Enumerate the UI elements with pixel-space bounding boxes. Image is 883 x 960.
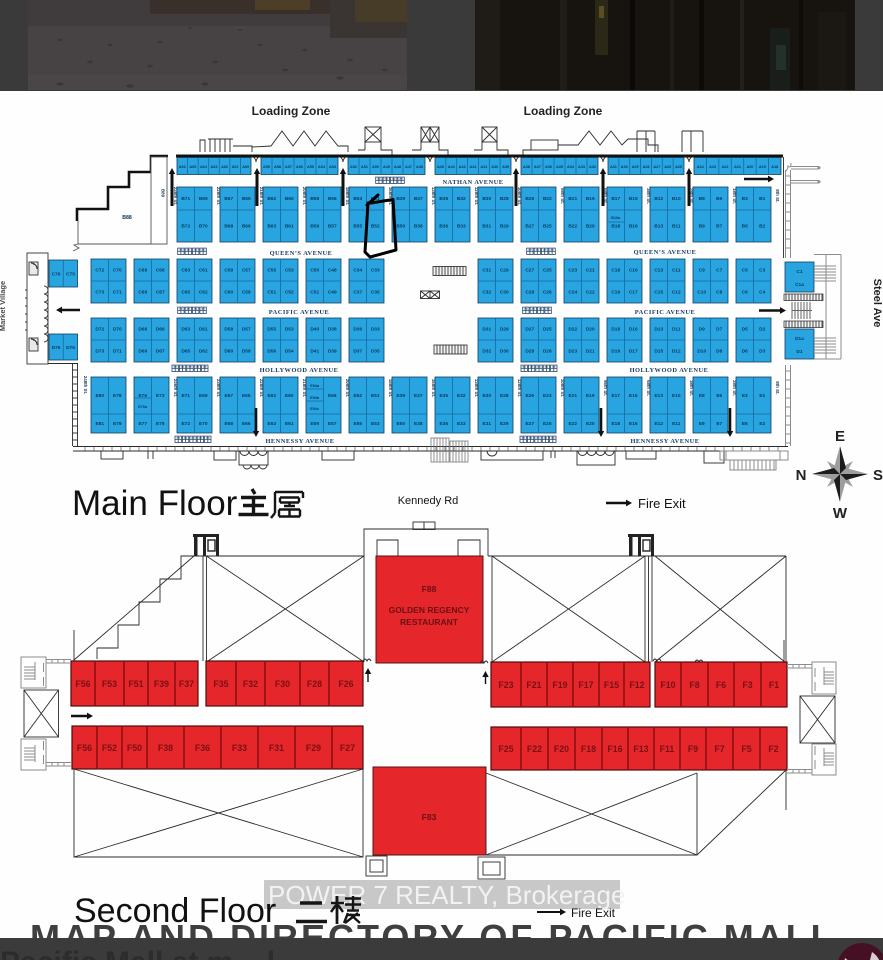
svg-text:E54a: E54a: [310, 384, 320, 388]
svg-text:D75: D75: [66, 345, 75, 351]
svg-text:D15: D15: [654, 349, 663, 355]
svg-text:F7: F7: [714, 744, 724, 754]
svg-text:C24: C24: [568, 290, 577, 296]
svg-text:D76: D76: [52, 345, 61, 351]
svg-text:B22: B22: [568, 224, 577, 230]
svg-text:F32: F32: [243, 679, 258, 689]
svg-text:C29: C29: [500, 268, 509, 274]
svg-text:C67: C67: [156, 290, 165, 296]
svg-text:B60: B60: [285, 196, 294, 202]
svg-text:F29: F29: [306, 743, 321, 753]
svg-text:A32: A32: [589, 165, 596, 169]
svg-text:B65: B65: [242, 196, 251, 202]
svg-text:B36: B36: [439, 224, 448, 230]
svg-text:F18: F18: [581, 744, 596, 754]
svg-text:F36: F36: [195, 743, 210, 753]
svg-text:D56: D56: [267, 349, 276, 355]
svg-text:A39: A39: [502, 165, 509, 169]
svg-text:C6: C6: [742, 290, 748, 296]
svg-text:A22: A22: [722, 165, 729, 169]
svg-text:D71: D71: [113, 349, 122, 355]
svg-text:D39: D39: [328, 349, 337, 355]
svg-text:E23: E23: [543, 393, 552, 399]
svg-text:B13: B13: [654, 224, 663, 230]
svg-text:C35: C35: [371, 290, 380, 296]
svg-text:238th St.: 238th St.: [216, 379, 221, 397]
svg-text:E76: E76: [138, 393, 147, 399]
svg-text:B59: B59: [310, 224, 319, 230]
svg-text:E70: E70: [199, 421, 208, 427]
svg-text:38th St.: 38th St.: [689, 380, 694, 396]
svg-text:E60: E60: [285, 393, 294, 399]
svg-text:A37: A37: [534, 165, 541, 169]
svg-text:D30: D30: [500, 349, 509, 355]
svg-text:B66: B66: [242, 224, 251, 230]
svg-text:D61: D61: [199, 327, 208, 333]
svg-text:E67: E67: [224, 393, 233, 399]
svg-text:A50: A50: [372, 165, 379, 169]
svg-text:248th St.: 248th St.: [83, 376, 88, 394]
svg-text:B35: B35: [439, 196, 448, 202]
svg-text:NATHAN AVENUE: NATHAN AVENUE: [442, 179, 503, 186]
svg-text:F33: F33: [232, 743, 247, 753]
svg-text:B89: B89: [161, 189, 166, 198]
svg-text:B19: B19: [586, 196, 595, 202]
svg-text:D33: D33: [371, 327, 380, 333]
svg-text:D59: D59: [224, 327, 233, 333]
svg-text:D36: D36: [353, 327, 362, 333]
svg-text:E6: E6: [716, 393, 722, 399]
svg-text:Pacific Mall at m... l: Pacific Mall at m... l: [0, 946, 275, 960]
svg-text:E72: E72: [181, 421, 190, 427]
svg-text:QUEEN’S AVENUE: QUEEN’S AVENUE: [270, 250, 333, 257]
svg-text:E16: E16: [629, 421, 638, 427]
svg-text:B28: B28: [500, 196, 509, 202]
svg-text:C9: C9: [699, 268, 705, 274]
svg-text:E15: E15: [629, 393, 638, 399]
svg-text:F88: F88: [422, 584, 437, 594]
svg-text:E35: E35: [439, 393, 448, 399]
svg-text:E: E: [835, 428, 845, 445]
svg-text:F38: F38: [158, 743, 173, 753]
svg-text:C12: C12: [672, 290, 681, 296]
svg-text:D54: D54: [285, 349, 294, 355]
svg-text:A26: A26: [664, 165, 671, 169]
svg-text:A28: A28: [643, 165, 650, 169]
svg-text:F51: F51: [128, 679, 143, 689]
svg-text:B53: B53: [353, 196, 362, 202]
svg-text:C18: C18: [611, 268, 620, 274]
svg-text:D69: D69: [138, 349, 147, 355]
svg-text:E7: E7: [716, 421, 722, 427]
svg-text:A18: A18: [771, 165, 778, 169]
svg-text:C71: C71: [113, 290, 122, 296]
svg-text:E68: E68: [224, 421, 233, 427]
svg-text:B32: B32: [457, 196, 466, 202]
svg-text:HOLLYWOOD AVENUE: HOLLYWOOD AVENUE: [630, 367, 709, 374]
svg-text:D40: D40: [310, 327, 319, 333]
svg-text:E30: E30: [482, 393, 491, 399]
svg-text:A40: A40: [491, 165, 498, 169]
svg-text:C48: C48: [328, 268, 337, 274]
svg-text:E18: E18: [611, 421, 620, 427]
svg-text:28th St.: 28th St.: [732, 380, 737, 396]
svg-text:C52: C52: [285, 290, 294, 296]
svg-text:C25: C25: [543, 268, 552, 274]
svg-text:Main Floor: Main Floor: [72, 484, 238, 523]
svg-text:C15: C15: [654, 290, 663, 296]
svg-text:A45: A45: [437, 165, 444, 169]
svg-text:D70: D70: [113, 327, 122, 333]
svg-text:E36: E36: [439, 421, 448, 427]
svg-text:E8: E8: [699, 393, 705, 399]
svg-text:A65: A65: [189, 165, 196, 169]
svg-text:B16: B16: [629, 224, 638, 230]
svg-text:E56: E56: [328, 393, 337, 399]
svg-text:PACIFIC AVENUE: PACIFIC AVENUE: [635, 309, 696, 316]
svg-text:D26: D26: [543, 349, 552, 355]
svg-text:E32: E32: [457, 393, 466, 399]
svg-text:D9: D9: [699, 327, 705, 333]
svg-text:E57: E57: [328, 421, 337, 427]
svg-text:A36: A36: [545, 165, 552, 169]
svg-text:218th St.: 218th St.: [302, 379, 307, 397]
svg-text:B8: B8: [699, 196, 705, 202]
svg-text:E1: E1: [759, 393, 765, 399]
svg-text:A51: A51: [361, 165, 368, 169]
svg-text:B71: B71: [181, 196, 190, 202]
svg-text:D18: D18: [611, 327, 620, 333]
svg-text:F30: F30: [275, 679, 290, 689]
svg-text:D1: D1: [796, 349, 802, 355]
svg-text:E38: E38: [414, 421, 423, 427]
svg-text:D29: D29: [500, 327, 509, 333]
svg-text:B11: B11: [672, 224, 681, 230]
svg-text:D38: D38: [328, 327, 337, 333]
svg-text:F21: F21: [526, 680, 541, 690]
svg-text:A27: A27: [653, 165, 660, 169]
svg-text:B10: B10: [672, 196, 681, 202]
svg-text:D66: D66: [156, 327, 165, 333]
svg-text:A34: A34: [567, 165, 575, 169]
svg-text:C13: C13: [654, 268, 663, 274]
svg-text:E22: E22: [568, 421, 577, 427]
svg-text:A41: A41: [480, 165, 487, 169]
svg-text:B12: B12: [654, 196, 663, 202]
svg-text:F37: F37: [179, 679, 194, 689]
svg-text:C31: C31: [482, 268, 491, 274]
svg-text:B72: B72: [181, 224, 190, 230]
svg-text:F1: F1: [769, 680, 779, 690]
svg-text:B57: B57: [328, 224, 337, 230]
svg-text:D8: D8: [716, 349, 722, 355]
svg-text:C55: C55: [267, 268, 276, 274]
svg-text:D41: D41: [310, 349, 319, 355]
svg-text:C70: C70: [113, 268, 122, 274]
svg-text:F13: F13: [633, 744, 648, 754]
svg-text:B15: B15: [629, 196, 638, 202]
svg-text:C69: C69: [138, 290, 147, 296]
svg-text:F23: F23: [498, 680, 513, 690]
svg-text:C21: C21: [586, 268, 595, 274]
svg-text:C58: C58: [242, 290, 251, 296]
svg-text:Market Village: Market Village: [0, 281, 7, 331]
svg-text:C7: C7: [716, 268, 722, 274]
svg-text:E63: E63: [267, 421, 276, 427]
svg-text:138th St.: 138th St.: [474, 379, 479, 397]
svg-text:E53: E53: [371, 421, 380, 427]
svg-text:A42: A42: [470, 165, 477, 169]
svg-text:D1a: D1a: [795, 336, 804, 342]
svg-text:C51: C51: [310, 290, 319, 296]
svg-text:B31: B31: [482, 224, 491, 230]
svg-text:228th St.: 228th St.: [259, 379, 264, 397]
svg-text:D25: D25: [543, 327, 552, 333]
svg-text:168th St.: 168th St.: [431, 379, 436, 397]
svg-text:F19: F19: [552, 680, 567, 690]
svg-text:B56: B56: [328, 196, 337, 202]
svg-text:D27: D27: [525, 327, 534, 333]
svg-text:E69: E69: [199, 393, 208, 399]
svg-text:E37: E37: [414, 393, 423, 399]
svg-text:E51: E51: [371, 393, 380, 399]
svg-text:E71: E71: [181, 393, 190, 399]
svg-text:B6: B6: [716, 196, 722, 202]
svg-text:D21: D21: [586, 349, 595, 355]
svg-text:E11: E11: [672, 421, 681, 427]
svg-text:C49: C49: [328, 290, 337, 296]
svg-text:F15: F15: [604, 680, 619, 690]
svg-text:E81: E81: [95, 421, 104, 427]
svg-text:C26: C26: [543, 290, 552, 296]
svg-text:A58: A58: [274, 165, 281, 169]
svg-text:F2: F2: [768, 744, 778, 754]
svg-text:C37: C37: [353, 290, 362, 296]
svg-text:B69: B69: [199, 196, 208, 202]
svg-text:B2: B2: [759, 224, 765, 230]
svg-text:B58: B58: [310, 196, 319, 202]
svg-text:F12: F12: [629, 680, 644, 690]
svg-text:C23: C23: [568, 268, 577, 274]
svg-text:HOLLYWOOD AVENUE: HOLLYWOOD AVENUE: [260, 367, 339, 374]
svg-text:D19: D19: [611, 349, 620, 355]
svg-text:W: W: [833, 505, 848, 522]
svg-text:E25: E25: [543, 421, 552, 427]
svg-text:E76a: E76a: [138, 405, 148, 409]
svg-text:C50: C50: [310, 268, 319, 274]
svg-text:C34: C34: [353, 268, 362, 274]
svg-text:Loading Zone: Loading Zone: [524, 104, 603, 118]
svg-text:D13: D13: [654, 327, 663, 333]
svg-text:HENNESSY AVENUE: HENNESSY AVENUE: [630, 438, 699, 445]
svg-text:RESTAURANT: RESTAURANT: [400, 617, 459, 627]
svg-text:E77: E77: [138, 421, 147, 427]
svg-text:C73: C73: [95, 290, 104, 296]
svg-text:C60: C60: [224, 290, 233, 296]
svg-text:E12: E12: [654, 421, 663, 427]
svg-text:B50: B50: [396, 224, 405, 230]
svg-text:A35: A35: [556, 165, 563, 169]
svg-text:F10: F10: [660, 680, 675, 690]
svg-text:F39: F39: [154, 679, 169, 689]
svg-text:E50: E50: [396, 421, 405, 427]
svg-text:A49: A49: [383, 165, 390, 169]
svg-text:C32: C32: [482, 290, 491, 296]
svg-text:A61: A61: [232, 165, 239, 169]
svg-text:F5: F5: [741, 744, 751, 754]
svg-text:E61: E61: [285, 421, 294, 427]
svg-text:E29: E29: [500, 421, 509, 427]
svg-text:C33: C33: [371, 268, 380, 274]
svg-text:F17: F17: [578, 680, 593, 690]
svg-text:D37: D37: [353, 349, 362, 355]
svg-text:A24: A24: [697, 165, 705, 169]
svg-text:E66: E66: [242, 421, 251, 427]
svg-text:E21: E21: [568, 393, 577, 399]
svg-text:E5: E5: [742, 421, 748, 427]
svg-text:128th St.: 128th St.: [517, 379, 522, 397]
svg-text:C62: C62: [199, 290, 208, 296]
svg-text:F52: F52: [102, 743, 117, 753]
svg-text:D72: D72: [95, 327, 104, 333]
svg-text:C1: C1: [796, 269, 802, 275]
svg-text:E65: E65: [242, 393, 251, 399]
svg-text:A46: A46: [416, 165, 423, 169]
svg-text:B21: B21: [568, 196, 577, 202]
svg-text:E9: E9: [699, 421, 705, 427]
svg-text:B18: B18: [611, 224, 620, 230]
svg-text:C68: C68: [138, 268, 147, 274]
svg-text:A57: A57: [285, 165, 292, 169]
svg-text:GOLDEN REGENCY: GOLDEN REGENCY: [389, 605, 470, 615]
svg-text:A44: A44: [448, 165, 456, 169]
svg-text:F11: F11: [660, 744, 675, 754]
svg-text:F28: F28: [307, 679, 322, 689]
svg-text:D11: D11: [672, 327, 681, 333]
svg-text:A56: A56: [296, 165, 303, 169]
svg-text:C61: C61: [199, 268, 208, 274]
svg-text:D22: D22: [568, 327, 577, 333]
svg-text:E73: E73: [156, 393, 165, 399]
svg-text:A55: A55: [307, 165, 314, 169]
svg-text:B5: B5: [742, 224, 748, 230]
svg-text:C17: C17: [629, 290, 638, 296]
svg-text:PACIFIC AVENUE: PACIFIC AVENUE: [269, 309, 330, 316]
svg-text:B20: B20: [586, 224, 595, 230]
svg-text:D32: D32: [482, 349, 491, 355]
svg-text:C4: C4: [759, 290, 765, 296]
svg-text:B68: B68: [224, 224, 233, 230]
svg-text:C1a: C1a: [795, 282, 804, 288]
svg-text:C57: C57: [242, 268, 251, 274]
svg-text:C27: C27: [525, 268, 534, 274]
svg-text:C53: C53: [285, 268, 294, 274]
svg-text:C63: C63: [181, 268, 190, 274]
svg-text:A64: A64: [200, 165, 208, 169]
svg-text:A33: A33: [578, 165, 585, 169]
svg-text:A25: A25: [675, 165, 682, 169]
svg-text:E28: E28: [500, 393, 509, 399]
svg-text:A63: A63: [211, 165, 218, 169]
svg-text:E59: E59: [310, 421, 319, 427]
svg-text:A29: A29: [632, 165, 639, 169]
svg-text:E33: E33: [457, 421, 466, 427]
svg-text:B52: B52: [371, 224, 380, 230]
svg-text:B26: B26: [525, 196, 534, 202]
svg-text:C65: C65: [181, 290, 190, 296]
svg-text:C75: C75: [66, 272, 75, 278]
svg-text:A59: A59: [263, 165, 270, 169]
svg-text:A20: A20: [746, 165, 753, 169]
svg-text:A53: A53: [329, 165, 336, 169]
svg-text:A60: A60: [242, 165, 249, 169]
svg-text:208th St.: 208th St.: [345, 379, 350, 397]
svg-text:246th St.: 246th St.: [173, 379, 178, 397]
svg-text:F20: F20: [554, 744, 569, 754]
svg-text:A48: A48: [394, 165, 401, 169]
svg-text:E79: E79: [113, 421, 122, 427]
svg-text:D23: D23: [568, 349, 577, 355]
svg-text:B63: B63: [267, 224, 276, 230]
svg-text:F8: F8: [689, 680, 699, 690]
svg-text:B27: B27: [525, 224, 534, 230]
svg-text:B25: B25: [543, 224, 552, 230]
svg-text:A21: A21: [734, 165, 741, 169]
svg-text:C59: C59: [224, 268, 233, 274]
svg-text:E3: E3: [742, 393, 748, 399]
svg-text:D35: D35: [371, 349, 380, 355]
svg-text:D10: D10: [697, 349, 706, 355]
svg-text:B29: B29: [500, 224, 509, 230]
svg-text:E54c: E54c: [310, 407, 319, 411]
svg-text:D2: D2: [759, 327, 765, 333]
svg-text:E17: E17: [611, 393, 620, 399]
svg-text:D20: D20: [586, 327, 595, 333]
svg-text:C19: C19: [611, 290, 620, 296]
svg-text:8th St.: 8th St.: [775, 381, 780, 394]
svg-text:D62: D62: [199, 349, 208, 355]
svg-text:F9: F9: [688, 744, 698, 754]
svg-text:HENNESSY AVENUE: HENNESSY AVENUE: [265, 438, 334, 445]
svg-text:D5: D5: [742, 327, 748, 333]
svg-text:F31: F31: [269, 743, 284, 753]
svg-text:D3: D3: [759, 349, 765, 355]
svg-text:D58: D58: [242, 349, 251, 355]
svg-text:F22: F22: [527, 744, 542, 754]
svg-text:D7: D7: [716, 327, 722, 333]
svg-text:D63: D63: [181, 327, 190, 333]
svg-text:C76: C76: [52, 272, 61, 278]
svg-text:F3: F3: [742, 680, 752, 690]
svg-text:Kennedy Rd: Kennedy Rd: [398, 495, 459, 507]
svg-text:D16: D16: [629, 327, 638, 333]
svg-text:B39: B39: [396, 196, 405, 202]
svg-text:A66: A66: [179, 165, 186, 169]
svg-text:108th St.: 108th St.: [560, 379, 565, 397]
svg-text:A54: A54: [318, 165, 326, 169]
svg-text:Loading Zone: Loading Zone: [252, 104, 331, 118]
svg-text:A23: A23: [709, 165, 716, 169]
svg-text:C3: C3: [759, 268, 765, 274]
svg-text:D57: D57: [242, 327, 251, 333]
svg-text:B55: B55: [353, 224, 362, 230]
svg-text:C10: C10: [697, 290, 706, 296]
svg-text:B88: B88: [122, 215, 132, 221]
svg-text:F56: F56: [75, 679, 90, 689]
svg-text:F26: F26: [338, 679, 353, 689]
svg-text:E78: E78: [113, 393, 122, 399]
svg-text:188th St.: 188th St.: [388, 379, 393, 397]
